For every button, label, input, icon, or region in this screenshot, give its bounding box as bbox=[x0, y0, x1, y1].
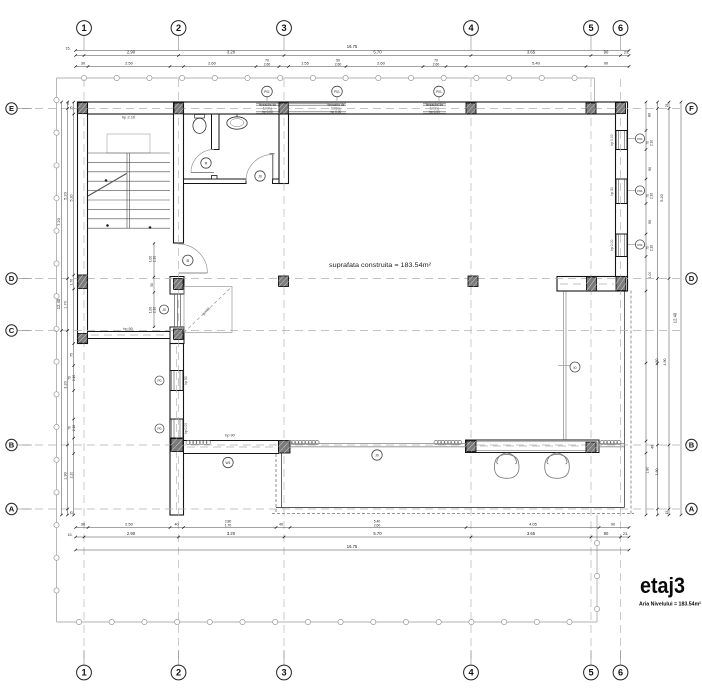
svg-text:40: 40 bbox=[175, 523, 179, 527]
svg-text:4.90: 4.90 bbox=[663, 359, 667, 366]
svg-text:B: B bbox=[689, 441, 695, 450]
svg-text:15: 15 bbox=[70, 511, 74, 515]
svg-text:90: 90 bbox=[611, 523, 615, 527]
svg-text:1.55: 1.55 bbox=[301, 61, 310, 66]
svg-text:I0: I0 bbox=[574, 366, 577, 370]
svg-text:30,: 30, bbox=[66, 101, 70, 105]
svg-text:90: 90 bbox=[604, 50, 609, 55]
svg-text:23,: 23, bbox=[665, 103, 669, 108]
svg-text:2.60: 2.60 bbox=[433, 63, 440, 67]
svg-text:90: 90 bbox=[604, 531, 609, 536]
svg-text:2.60: 2.60 bbox=[335, 63, 342, 67]
svg-text:P0: P0 bbox=[158, 427, 162, 431]
svg-text:1.00: 1.00 bbox=[648, 272, 652, 279]
svg-text:hp 0.00: hp 0.00 bbox=[184, 423, 188, 434]
svg-text:B: B bbox=[187, 259, 190, 263]
svg-text:2: 2 bbox=[176, 668, 181, 678]
svg-text:5.70: 5.70 bbox=[373, 531, 382, 536]
svg-text:2.10: 2.10 bbox=[72, 425, 76, 431]
svg-text:P01: P01 bbox=[637, 243, 643, 247]
svg-text:D: D bbox=[9, 274, 15, 283]
svg-text:P01: P01 bbox=[264, 90, 270, 94]
svg-text:6: 6 bbox=[618, 668, 623, 678]
svg-text:R: R bbox=[205, 162, 208, 166]
svg-text:hp 2.10: hp 2.10 bbox=[122, 115, 136, 120]
svg-text:2.60: 2.60 bbox=[377, 61, 386, 66]
svg-text:hp 0.00: hp 0.00 bbox=[331, 110, 342, 114]
svg-text:3.20: 3.20 bbox=[63, 381, 67, 388]
svg-text:W1: W1 bbox=[225, 461, 230, 465]
svg-text:15,: 15, bbox=[665, 510, 669, 515]
svg-text:A: A bbox=[689, 505, 695, 514]
svg-text:suprafata construita = 183.54m: suprafata construita = 183.54m² bbox=[329, 262, 431, 269]
svg-text:J0: J0 bbox=[162, 308, 166, 312]
svg-text:A: A bbox=[9, 505, 15, 514]
svg-text:5.20: 5.20 bbox=[62, 191, 67, 200]
svg-text:2.90: 2.90 bbox=[127, 50, 136, 55]
svg-text:30: 30 bbox=[81, 523, 85, 527]
svg-text:4.05: 4.05 bbox=[529, 522, 538, 527]
svg-text:P01: P01 bbox=[436, 90, 442, 94]
svg-text:1: 1 bbox=[81, 23, 86, 33]
svg-text:6: 6 bbox=[618, 23, 623, 33]
svg-text:D: D bbox=[689, 274, 695, 283]
svg-text:5.70: 5.70 bbox=[373, 50, 382, 55]
svg-text:2.10: 2.10 bbox=[650, 245, 654, 251]
svg-text:hp 90: hp 90 bbox=[225, 434, 235, 438]
svg-text:2.10: 2.10 bbox=[153, 256, 157, 262]
svg-text:P0: P0 bbox=[158, 379, 162, 383]
svg-text:1: 1 bbox=[81, 668, 86, 678]
svg-text:F: F bbox=[689, 104, 694, 113]
svg-text:1.70: 1.70 bbox=[70, 279, 74, 285]
svg-text:16.75: 16.75 bbox=[347, 544, 358, 549]
svg-text:1.90: 1.90 bbox=[655, 469, 659, 476]
svg-text:J0: J0 bbox=[258, 175, 262, 179]
svg-text:P01: P01 bbox=[637, 137, 643, 141]
svg-text:3.65: 3.65 bbox=[527, 531, 536, 536]
svg-text:P01: P01 bbox=[637, 189, 643, 193]
svg-text:2.10: 2.10 bbox=[650, 140, 654, 146]
svg-text:4: 4 bbox=[468, 23, 474, 33]
svg-text:90: 90 bbox=[648, 220, 652, 224]
svg-text:J0: J0 bbox=[375, 454, 379, 458]
svg-text:5.20: 5.20 bbox=[660, 194, 664, 201]
svg-text:15,: 15, bbox=[66, 47, 71, 51]
svg-text:hp 0.00: hp 0.00 bbox=[610, 239, 614, 250]
svg-text:2.20: 2.20 bbox=[70, 472, 74, 479]
svg-text:2.10: 2.10 bbox=[72, 375, 76, 381]
svg-text:2.60: 2.60 bbox=[374, 524, 381, 528]
svg-text:hp 0.00: hp 0.00 bbox=[429, 110, 440, 114]
svg-text:23,: 23, bbox=[623, 532, 628, 536]
svg-text:2.10: 2.10 bbox=[153, 307, 157, 313]
svg-text:C: C bbox=[9, 326, 15, 335]
svg-text:4.50: 4.50 bbox=[655, 359, 659, 366]
svg-text:5.20: 5.20 bbox=[70, 195, 74, 202]
svg-text:hp 0.00: hp 0.00 bbox=[262, 110, 273, 114]
svg-text:3.20: 3.20 bbox=[227, 50, 236, 55]
svg-text:3.20: 3.20 bbox=[227, 531, 236, 536]
svg-text:80: 80 bbox=[648, 113, 652, 117]
svg-text:49: 49 bbox=[651, 445, 655, 449]
svg-text:2.10: 2.10 bbox=[650, 193, 654, 199]
svg-text:12.40: 12.40 bbox=[56, 298, 61, 309]
svg-text:2.60: 2.60 bbox=[208, 61, 217, 66]
svg-text:12.40: 12.40 bbox=[673, 312, 678, 323]
svg-text:3: 3 bbox=[281, 23, 286, 33]
svg-text:50: 50 bbox=[150, 283, 154, 287]
svg-text:1.80: 1.80 bbox=[646, 467, 650, 474]
svg-text:Aria Nivelului = 183.54m²: Aria Nivelului = 183.54m² bbox=[639, 600, 701, 607]
svg-text:P01: P01 bbox=[334, 90, 340, 94]
svg-text:etaj3: etaj3 bbox=[640, 573, 685, 598]
svg-text:15: 15 bbox=[70, 106, 74, 110]
svg-text:hp 0.00: hp 0.00 bbox=[610, 134, 614, 145]
svg-text:1.70: 1.70 bbox=[225, 524, 232, 528]
svg-text:2.60: 2.60 bbox=[264, 63, 271, 67]
svg-text:1.90: 1.90 bbox=[63, 472, 67, 479]
svg-text:40: 40 bbox=[279, 523, 283, 527]
svg-text:90: 90 bbox=[648, 167, 652, 171]
svg-text:75: 75 bbox=[70, 353, 74, 357]
svg-text:5: 5 bbox=[588, 23, 593, 33]
svg-text:E: E bbox=[9, 104, 14, 113]
svg-text:3: 3 bbox=[281, 668, 286, 678]
svg-text:16.75: 16.75 bbox=[347, 44, 358, 49]
svg-text:90: 90 bbox=[604, 62, 608, 66]
svg-text:2.90: 2.90 bbox=[127, 531, 136, 536]
svg-text:hp 50: hp 50 bbox=[610, 187, 614, 196]
svg-text:2: 2 bbox=[176, 23, 181, 33]
svg-text:5: 5 bbox=[588, 668, 593, 678]
svg-text:15,: 15, bbox=[68, 533, 73, 537]
svg-text:3.65: 3.65 bbox=[527, 50, 536, 55]
svg-text:30: 30 bbox=[81, 62, 85, 66]
svg-text:4: 4 bbox=[468, 668, 474, 678]
svg-text:5.40: 5.40 bbox=[532, 61, 541, 66]
svg-text:1.70: 1.70 bbox=[63, 301, 67, 308]
svg-text:23,: 23, bbox=[624, 51, 629, 55]
svg-text:7.20: 7.20 bbox=[56, 217, 61, 226]
svg-text:B: B bbox=[9, 441, 15, 450]
svg-text:2.50: 2.50 bbox=[125, 522, 134, 527]
svg-text:2.50: 2.50 bbox=[125, 61, 134, 66]
svg-text:hp 50: hp 50 bbox=[184, 376, 188, 385]
